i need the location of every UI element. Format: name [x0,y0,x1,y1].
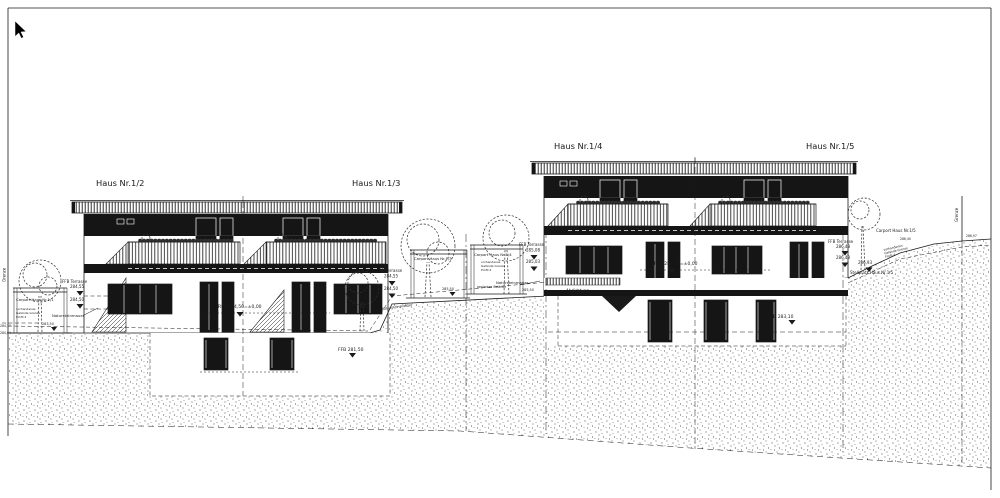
terrace-label: FFB Terrasse [519,242,545,247]
rfb-label: RFB 284,50=±0,00 [218,304,262,310]
carports-middle: FFB Terrasse 284,55 284,50 Carport Haus … [377,215,545,311]
level-value: 286,40 [900,237,911,241]
exterior-stair [250,290,284,332]
house-14-15-elevation: Haus Nr.1/4 Haus Nr.1/5 [530,141,858,346]
mouse-cursor-icon [15,21,26,38]
rfb-label: RFB 286,10=±0,00 [654,261,698,267]
carport-1-3-label: Carport Haus Nr.1/3 [414,256,452,261]
right-level-markers: FFB Terrasse 286,48 286,43 286,93 [828,239,873,272]
attic-story [544,176,848,198]
level-value: 284,55 [70,284,84,289]
stone-wall-label: Natursteinmauer [52,313,85,318]
level-value: 283,50 [42,322,54,326]
level-value: 285,03 [526,259,540,264]
level-value: 285,50 [442,287,454,291]
roof [530,157,858,174]
level-value: 286,97 [966,234,977,238]
house-label-1-4: Haus Nr.1/4 [554,141,602,151]
balcony-slab [84,264,388,273]
boundary-label-right: Grenze [954,207,959,222]
level-value: 285,08 [526,248,540,253]
carport-1-1-label: Carport Haus Nr.1/1 [16,297,54,302]
existing-grade-note-line: Profil 4 [481,268,491,272]
carport-1-5-label: Carport Haus Nr.1/5 [876,228,916,233]
drawing-canvas: Carport Haus Nr.1/1 vorhandenes Gelände … [0,0,1000,498]
balcony-railings [106,234,386,264]
level-value: 284,55 [384,274,398,279]
level-value: 284,77 [0,324,11,328]
basement: FFB 281,50 [150,333,390,396]
basement: Abdichtung FFB 283,10 [544,278,848,346]
attic-story [84,214,388,236]
parking-1-5-label: Stellplatz Haus Nr.1/5 [850,270,894,275]
balcony-slab [544,226,848,235]
terrace-label: FFB Terrasse [377,268,403,273]
ffb-basement-label: FFB 281,50 [338,347,364,353]
level-value: 284,50 [70,297,84,302]
house-label-1-3: Haus Nr.1/3 [352,178,400,188]
carport-1-4-label: Carport Haus Nr.1/4 [474,252,512,257]
house-label-1-5: Haus Nr.1/5 [806,141,854,151]
site-section-drawing: Carport Haus Nr.1/1 vorhandenes Gelände … [0,0,1000,498]
boundary-label-left: Grenze [2,267,7,282]
level-value: 286,93 [858,260,872,265]
carport-1-3: Carport Haus Nr.1/3 285,50 [406,250,470,298]
existing-grade-note-line: Profil 4 [16,315,26,319]
carport-1-4: Carport Haus Nr.1/4 vorhandenes Gelände … [467,245,527,294]
house-label-1-2: Haus Nr.1/2 [96,178,144,188]
waterproofing-label: Abdichtung [566,288,589,293]
level-value: 284,04 [0,331,11,335]
tree-icon [19,260,61,332]
level-value: 285,50 [522,288,534,292]
ffb-basement-label: FFB 283,10 [768,314,794,320]
level-value: 284,50 [384,286,398,291]
planned-grade-label: geplantes Gelände [477,285,506,289]
roof [70,196,404,213]
